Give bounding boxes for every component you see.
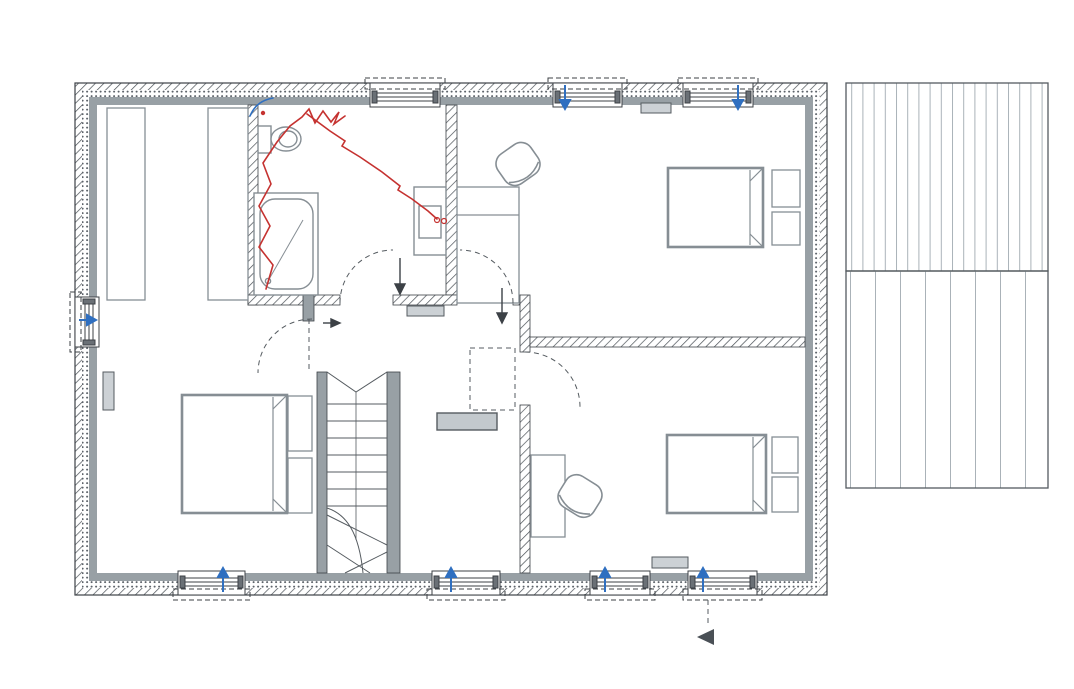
radiator-bottom xyxy=(652,557,688,568)
window-top-2 xyxy=(548,78,627,107)
roof-area xyxy=(846,83,1048,488)
bathtub xyxy=(254,193,318,295)
window-left xyxy=(70,292,99,352)
closet xyxy=(107,108,145,300)
floor-plan-sheet xyxy=(0,0,1074,689)
radiator-top xyxy=(641,103,671,113)
bed-chambre3 xyxy=(668,168,800,247)
window-bottom-4 xyxy=(683,571,762,600)
desk-chambre3 xyxy=(457,187,519,303)
entrance-marker xyxy=(697,600,714,645)
closet xyxy=(208,108,248,300)
radiator-left xyxy=(103,372,114,410)
window-top-1 xyxy=(365,78,445,107)
window-bottom-3 xyxy=(585,571,655,600)
floor-plan-drawing xyxy=(0,0,1074,689)
window-bottom-2 xyxy=(427,571,505,600)
radiator-hall xyxy=(407,306,444,316)
window-bottom-1 xyxy=(173,571,250,600)
window-top-3 xyxy=(678,78,758,107)
level-marker xyxy=(437,413,497,430)
